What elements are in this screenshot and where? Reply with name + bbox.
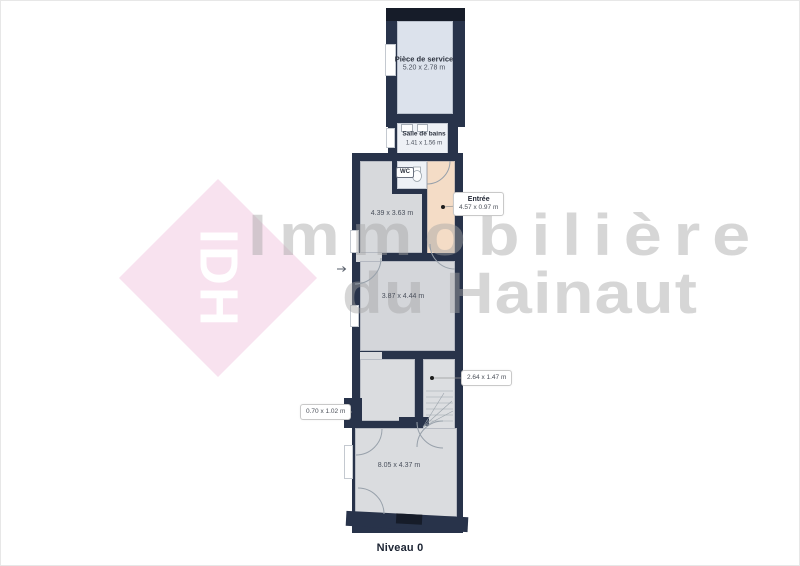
room1-dims: 4.39 x 3.63 m [371,210,413,219]
callout-entree-title: Entrée [459,196,498,204]
room2-floor [360,261,455,351]
callout-stairwell: 2.64 x 1.47 m [461,370,512,386]
label-room3: 8.05 x 4.37 m [378,462,420,471]
callout-stairwell-dims: 2.64 x 1.47 m [467,374,506,381]
room3-floor [355,428,457,517]
callout-entree: Entrée 4.57 x 0.97 m [453,192,504,216]
label-room-bath: Salle de bains 1.41 x 1.56 m [402,131,445,148]
wall-stub [399,417,429,426]
label-room-wc: WC [396,167,414,178]
callout-entree-dims: 4.57 x 0.97 m [459,204,498,211]
window-left-3 [344,445,353,479]
callout-closet: 0.70 x 1.02 m [300,404,351,420]
door-threshold [396,513,422,524]
wall-stair-divider [415,359,423,417]
window-bath [386,128,395,148]
window-left-2 [350,305,359,327]
label-room1: 4.39 x 3.63 m [371,210,413,219]
room3-dims: 8.05 x 4.37 m [378,462,420,471]
room-bath-dims: 1.41 x 1.56 m [402,139,445,148]
corridor-entree-floor [427,161,455,257]
floor-plan [0,0,800,566]
label-room2: 3.87 x 4.44 m [382,293,424,302]
lower-hall-floor [360,359,415,421]
label-room-service: Pièce de service 5.20 x 2.78 m [395,56,453,73]
room2-dims: 3.87 x 4.44 m [382,293,424,302]
floor-level-title: Niveau 0 [0,542,800,554]
idh-logo-text: IDH [187,229,249,328]
window-left-1 [350,230,359,253]
wall-corridor-left [422,194,427,257]
room-service-name: Pièce de service [395,56,453,65]
wall-service-top [386,8,465,21]
room-bath-name: Salle de bains [402,131,445,140]
callout-closet-dims: 0.70 x 1.02 m [306,408,345,415]
room-service-dims: 5.20 x 2.78 m [395,64,453,73]
